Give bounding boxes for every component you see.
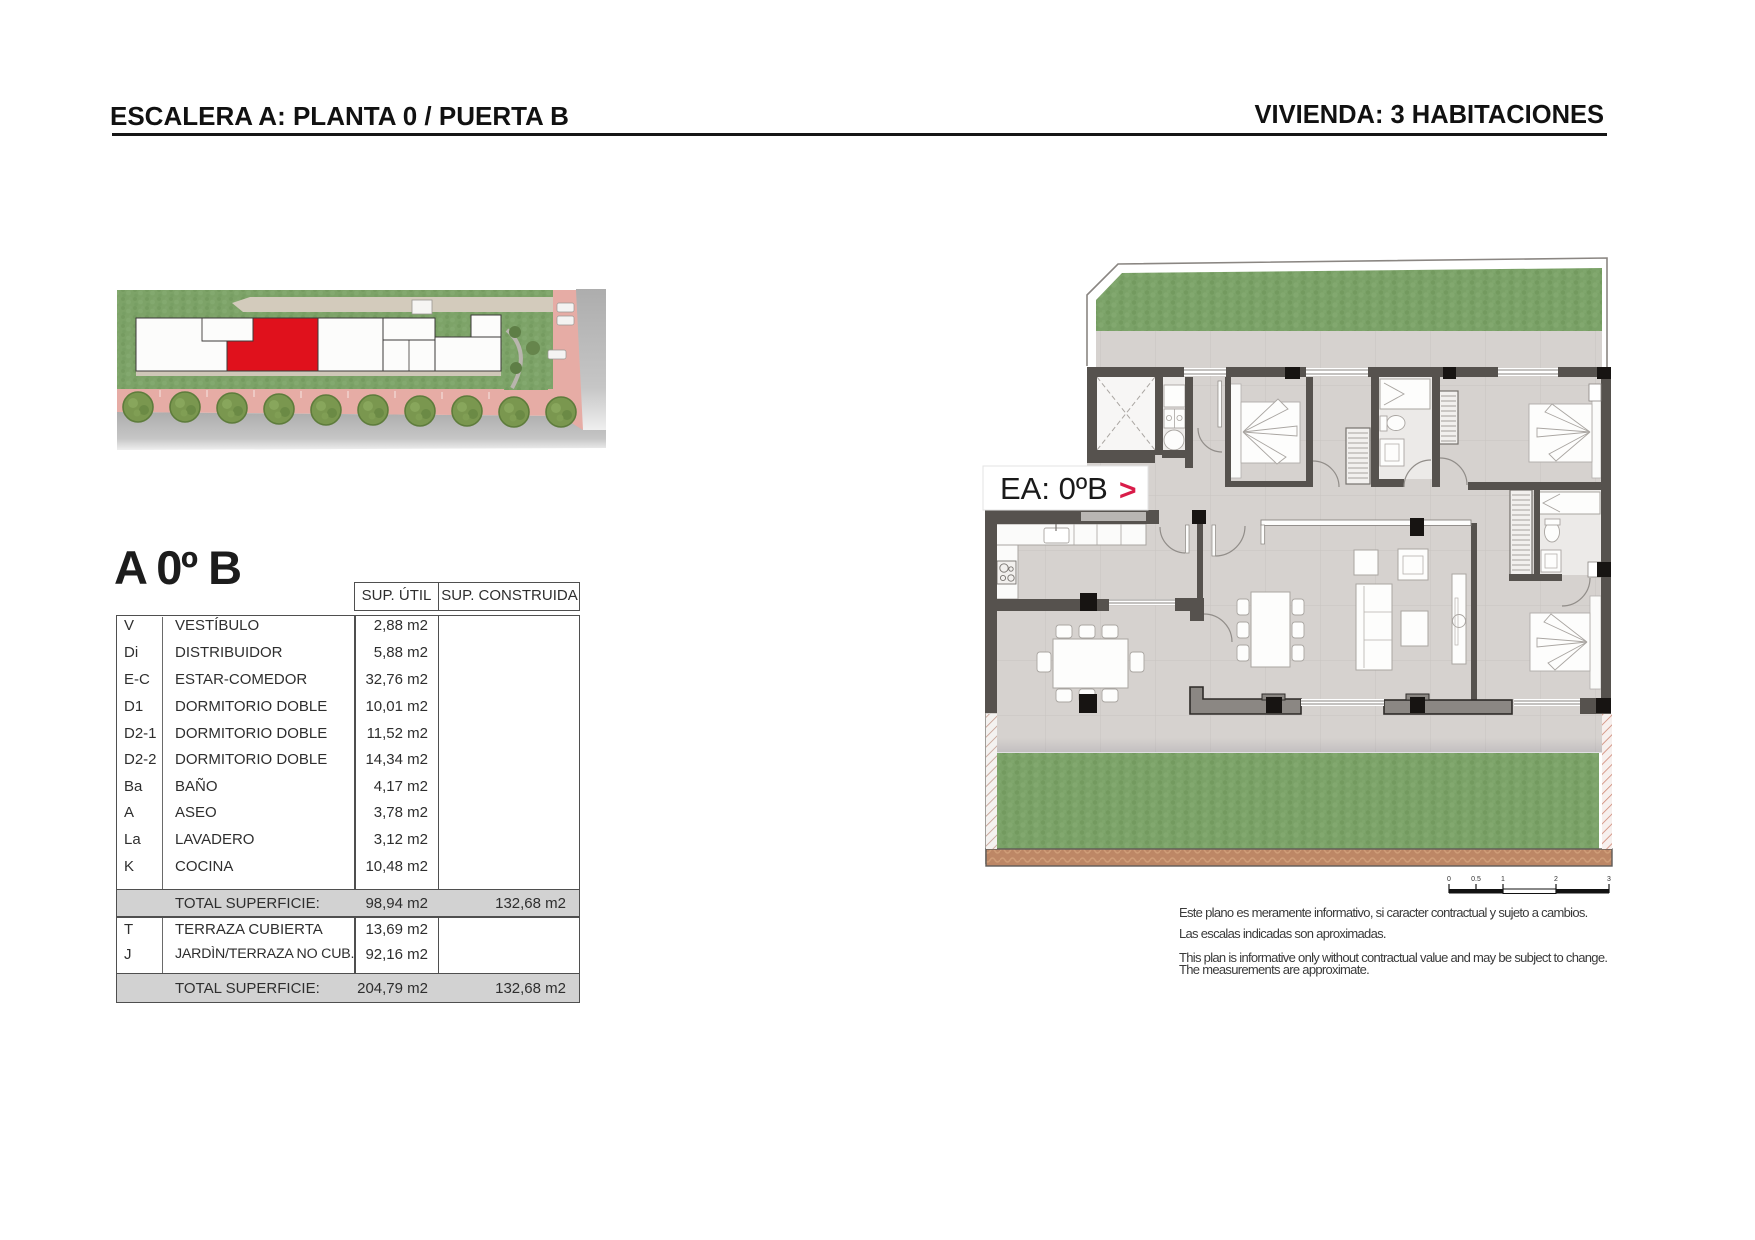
svg-text:1: 1 <box>1501 876 1505 883</box>
svg-text:>: > <box>1119 474 1137 507</box>
svg-text:EA: 0ºB: EA: 0ºB <box>1000 471 1108 506</box>
svg-text:0.5: 0.5 <box>1471 876 1481 883</box>
svg-text:3: 3 <box>1607 876 1611 883</box>
svg-text:2: 2 <box>1554 876 1558 883</box>
svg-text:0: 0 <box>1447 876 1451 883</box>
